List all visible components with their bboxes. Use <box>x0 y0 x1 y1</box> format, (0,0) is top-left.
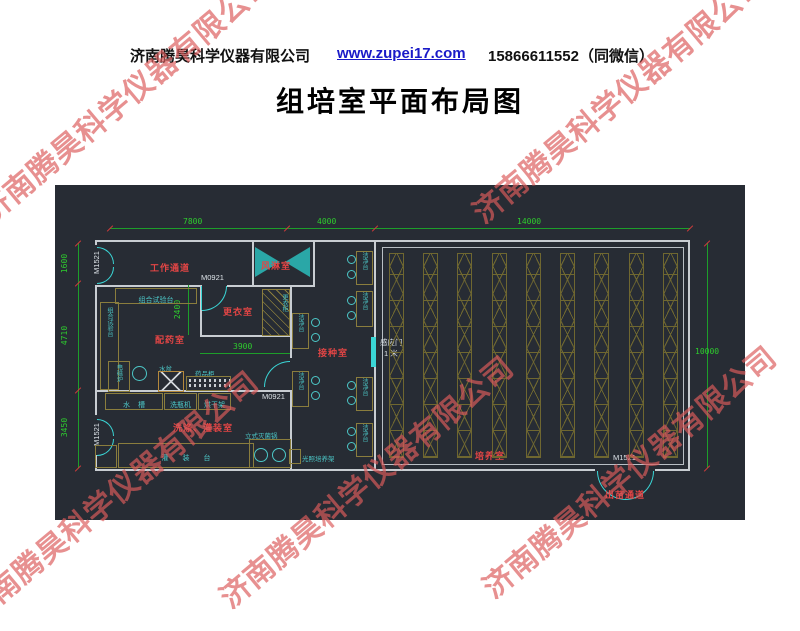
wall-top <box>95 240 690 242</box>
culture-rack <box>423 253 438 458</box>
door-label-m1521: M1521 <box>92 251 101 274</box>
dim-14000: 14000 <box>517 217 541 226</box>
medicine-cabinet <box>186 376 231 391</box>
filling-bench-label: 灌装台 <box>148 455 225 462</box>
corner-cabinet <box>95 445 117 468</box>
dim-tick <box>687 225 693 231</box>
culture-rack <box>526 253 541 458</box>
drying-rack: 烘干架 <box>198 393 231 410</box>
clean-bench-label: 洁净台 <box>360 292 369 310</box>
website-link[interactable]: www.zupei17.com <box>337 45 466 62</box>
page-title: 组培室平面布局图 <box>0 80 800 120</box>
company-name: 济南腾昊科学仪器有限公司 <box>130 45 310 66</box>
stool-circle <box>347 442 356 451</box>
clean-bench-label: 洁净台 <box>360 252 369 270</box>
room-label-work-corridor: 工作通道 <box>150 261 190 274</box>
dim-7800: 7800 <box>183 217 202 226</box>
culture-rack <box>594 253 609 458</box>
stool-circle <box>347 381 356 390</box>
stool-circle <box>311 333 320 342</box>
wardrobe-label: 更衣柜 <box>280 294 289 312</box>
combo-bench: 组合试验台 <box>115 288 197 304</box>
door-label-m1521: M1521 <box>92 423 101 446</box>
wardrobe: 更衣柜 <box>262 289 290 336</box>
combo-bench-label: 组合试验台 <box>105 307 114 337</box>
culture-rack <box>389 253 404 458</box>
wall-left-b <box>95 285 97 415</box>
stool-circle <box>347 311 356 320</box>
dim-3900: 3900 <box>233 342 252 351</box>
dim-line-left <box>78 243 79 468</box>
wall-bottom-right <box>655 469 690 471</box>
door-arc <box>264 361 290 387</box>
water-basin <box>158 371 184 392</box>
autoclave-circle <box>254 448 268 462</box>
airshower-wall-left <box>252 240 254 285</box>
light-shelf-label: 光照培养架 <box>302 453 335 463</box>
clean-bench-label: 洁净台 <box>296 314 305 332</box>
induction-cooker-label: 电磁炉 <box>115 364 124 382</box>
dim-tick <box>704 465 710 471</box>
clean-bench: 洁净台 <box>345 291 373 325</box>
clean-bench-label: 洁净台 <box>360 424 369 442</box>
phone-number: 15866611552（同微信） <box>488 45 654 66</box>
room-label-dressing: 更衣室 <box>223 305 253 318</box>
dim-10000: 10000 <box>695 347 719 356</box>
stool-circle <box>311 391 320 400</box>
clean-bench: 洁净台 <box>292 313 320 347</box>
wall-corridor-b <box>227 285 315 287</box>
pot-circle <box>132 366 147 381</box>
culture-rack <box>663 253 678 458</box>
door-label-m0921: M0921 <box>262 392 285 401</box>
filling-bench: 灌装台 <box>118 443 254 468</box>
stool-circle <box>347 296 356 305</box>
stool-circle <box>347 270 356 279</box>
room-label-media-prep: 配药室 <box>155 333 185 346</box>
induction-cooker: 电磁炉 <box>108 361 130 392</box>
dim-1600: 1600 <box>60 254 69 273</box>
clean-bench: 洁净台 <box>345 251 373 283</box>
wall-divider-b <box>374 367 376 471</box>
clean-bench: 洁净台 <box>345 377 373 409</box>
stool-circle <box>347 396 356 405</box>
combo-bench-label: 组合试验台 <box>139 297 174 304</box>
airshower-wall-right <box>313 240 315 285</box>
sensor-door <box>371 337 376 367</box>
dim-tick <box>75 465 81 471</box>
wall-corridor-a <box>95 285 200 287</box>
stool-circle <box>347 255 356 264</box>
clean-bench: 洁净台 <box>345 423 373 455</box>
clean-bench-label: 洁净台 <box>296 372 305 390</box>
bottle-washer: 洗瓶机 <box>164 393 197 410</box>
sink-label: 水槽 <box>115 402 153 409</box>
clean-bench-label: 洁净台 <box>360 378 369 396</box>
autoclave-circle <box>272 448 286 462</box>
wall-bottom-left <box>95 469 595 471</box>
bottle-washer-label: 洗瓶机 <box>170 402 191 409</box>
wall-divider-a <box>374 240 376 337</box>
drying-rack-label: 烘干架 <box>204 402 225 409</box>
culture-rack <box>560 253 575 458</box>
room-label-air-shower: 风淋室 <box>261 259 291 272</box>
room-label-washing-filling: 洗涤、灌装室 <box>173 421 233 434</box>
stool-circle <box>311 318 320 327</box>
dim-4000: 4000 <box>317 217 336 226</box>
clean-bench: 洁净台 <box>292 371 320 405</box>
sink-bench: 水槽 <box>105 393 163 410</box>
stool-circle <box>311 376 320 385</box>
culture-rack <box>492 253 507 458</box>
light-shelf-box <box>289 449 301 464</box>
culture-rack <box>457 253 472 458</box>
autoclave <box>249 439 291 468</box>
culture-rack <box>629 253 644 458</box>
wall-right <box>688 240 690 471</box>
wall-left-a <box>95 240 97 245</box>
room-label-seedling-exit: 出苗通道 <box>605 488 645 501</box>
cad-canvas: 7800 4000 14000 1600 4710 3450 10000 240… <box>55 185 745 520</box>
dim-line-top <box>110 228 690 229</box>
dim-4710: 4710 <box>60 326 69 345</box>
stool-circle <box>347 427 356 436</box>
dim-3450: 3450 <box>60 418 69 437</box>
room-label-inoculation: 接种室 <box>318 346 348 359</box>
dim-line-3900 <box>200 353 290 354</box>
door-label-m0921: M0921 <box>201 273 224 282</box>
